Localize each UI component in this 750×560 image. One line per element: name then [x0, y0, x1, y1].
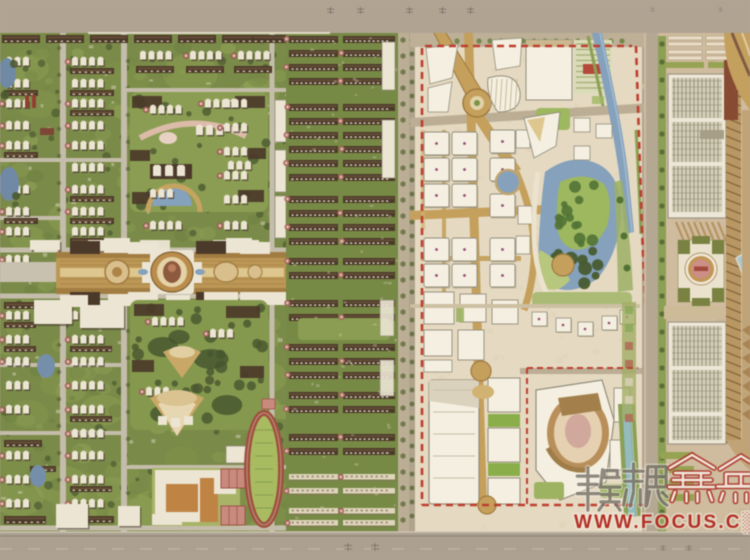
svg-text:WWW.FOCUS.C░: WWW.FOCUS.C░ [574, 512, 750, 533]
